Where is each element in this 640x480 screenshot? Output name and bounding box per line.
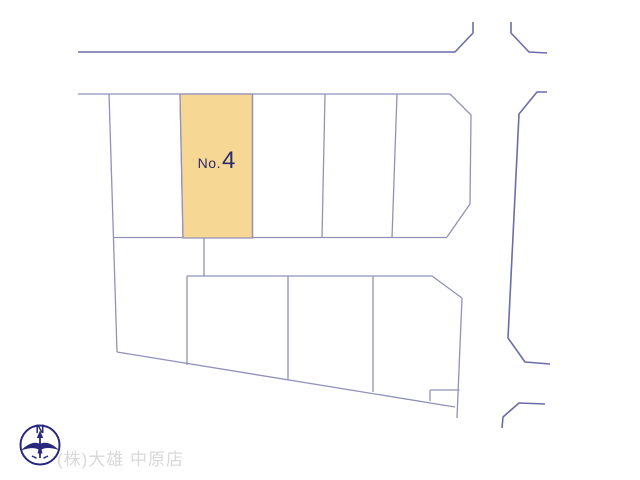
plot-number-prefix: No. (198, 155, 221, 171)
plot-number-label: No. 4 (180, 149, 253, 189)
upper-divider-4 (392, 94, 397, 238)
road-edge-top (78, 22, 473, 52)
road-edge-right (508, 92, 550, 364)
upper-divider-3 (322, 94, 325, 238)
south-boundary-diagonal (117, 352, 455, 407)
compass-wings (21, 443, 59, 454)
upper-block-right-boundary (447, 94, 471, 237)
site-plan-svg (0, 0, 640, 480)
road-edge-bottom-right-corner (502, 403, 545, 428)
lot-map-canvas: No. 4 N (株)大雄 中原店 (0, 0, 640, 480)
plot-number-value: 4 (222, 149, 235, 173)
lower-block-top-boundary (187, 276, 462, 298)
road-edge-top-right-corner (511, 22, 547, 53)
lower-block-right-boundary (457, 298, 462, 418)
company-name-label: (株)大雄 中原店 (57, 445, 184, 470)
west-boundary (109, 94, 117, 352)
